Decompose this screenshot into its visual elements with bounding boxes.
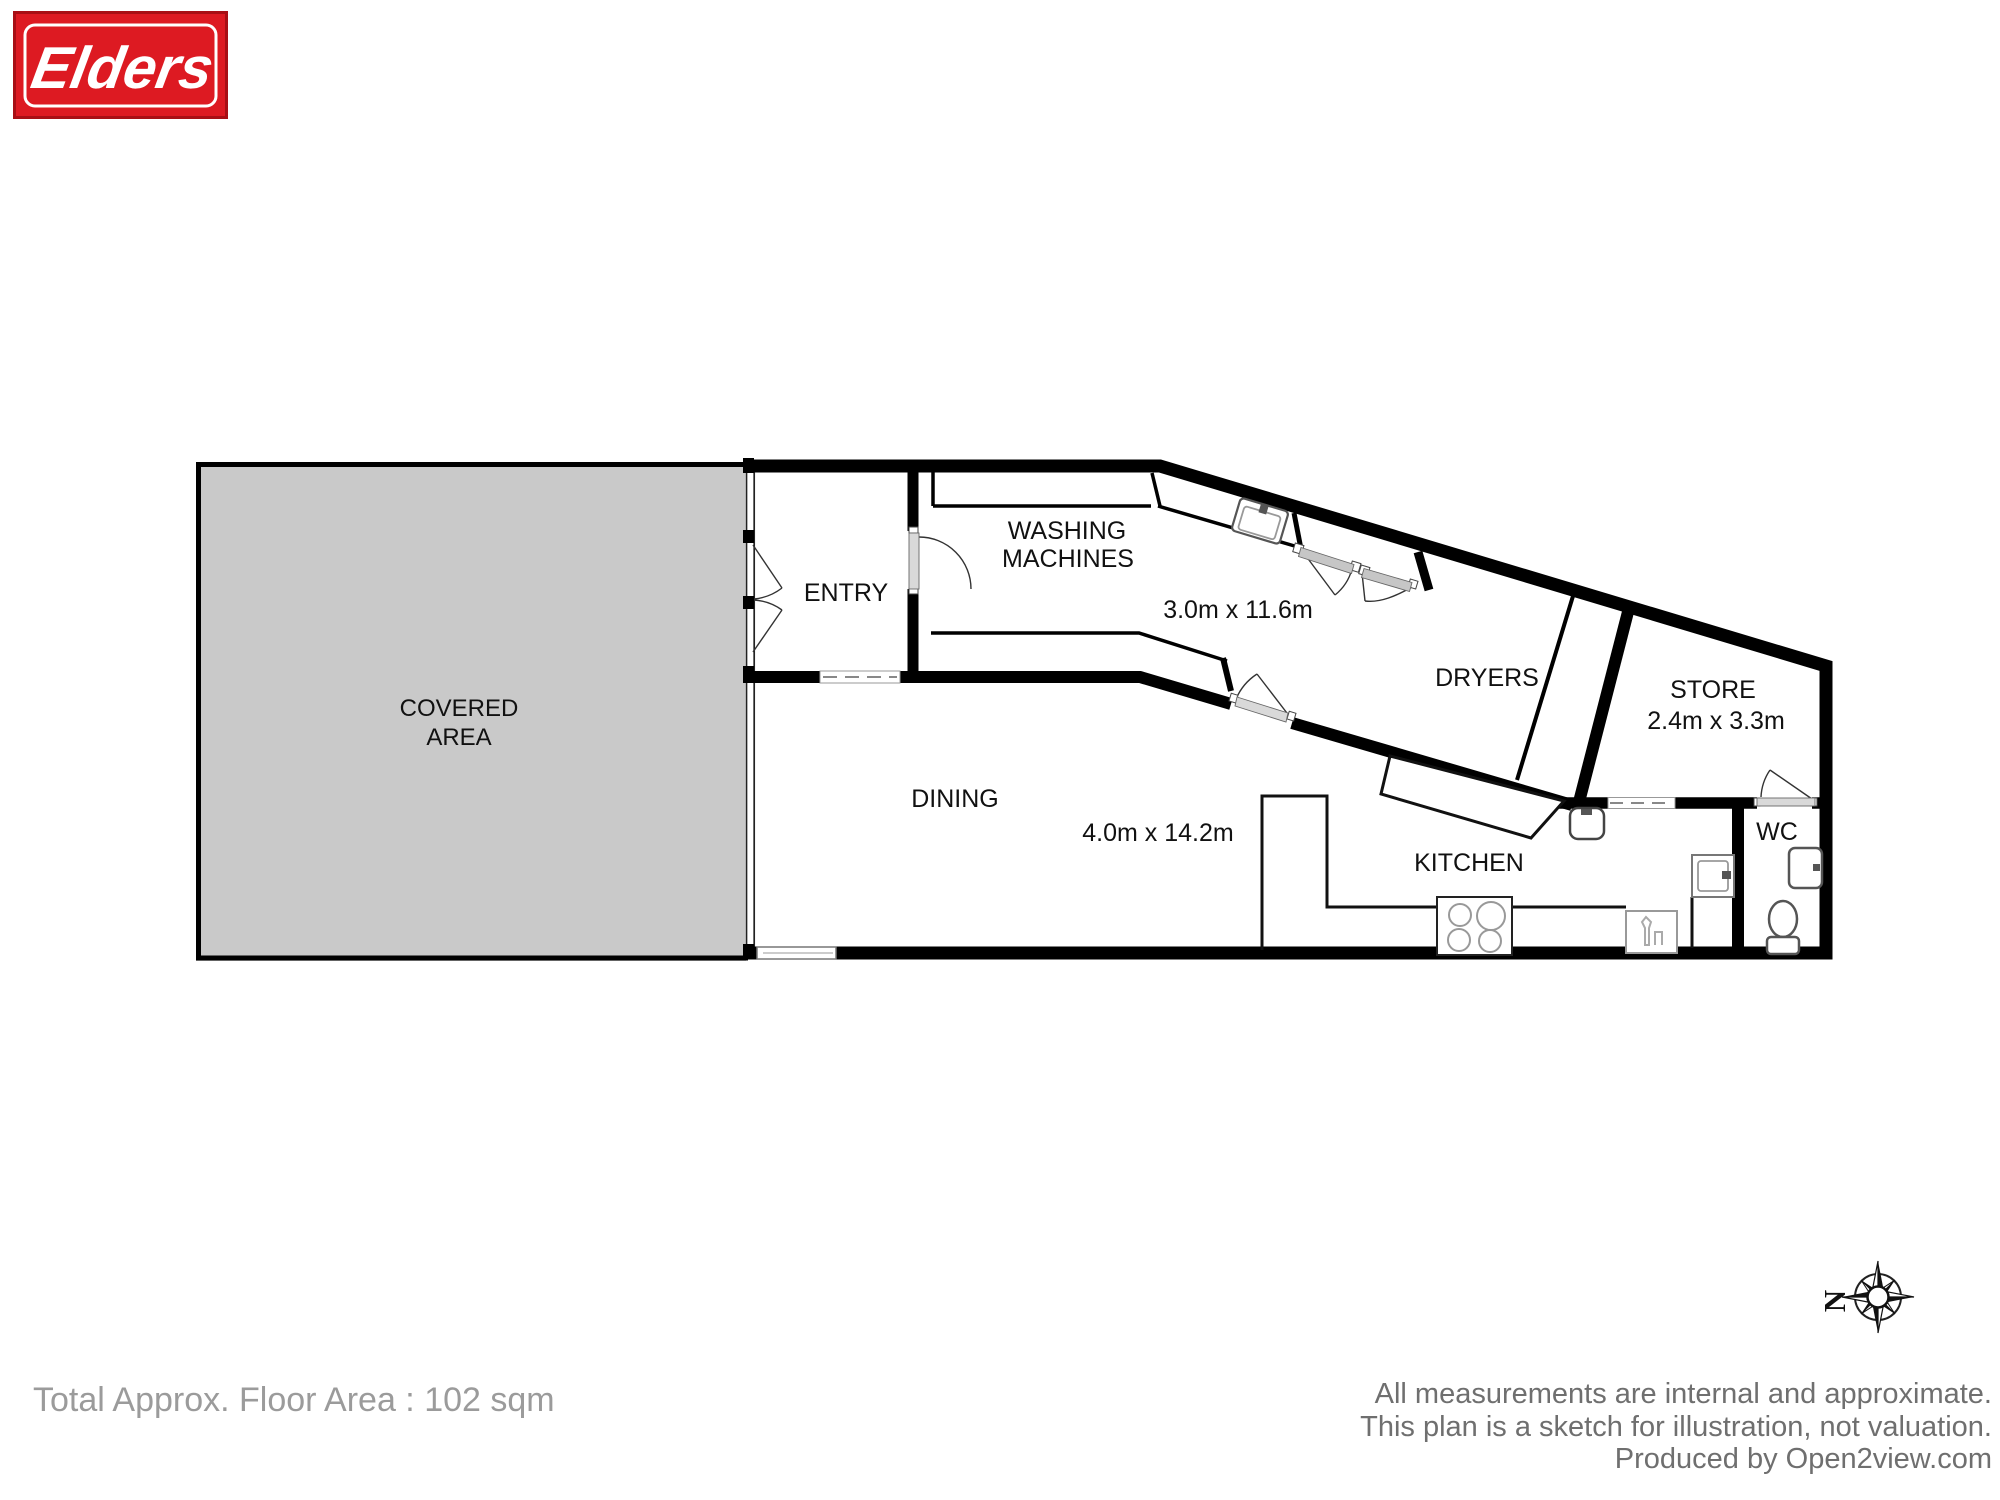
svg-text:N: N <box>1817 1290 1852 1312</box>
svg-text:WC: WC <box>1756 818 1798 846</box>
svg-text:AREA: AREA <box>426 724 491 751</box>
svg-text:MACHINES: MACHINES <box>1002 545 1134 573</box>
svg-text:All measurements are internal: All measurements are internal and approx… <box>1375 1378 1992 1410</box>
svg-text:ENTRY: ENTRY <box>804 579 889 607</box>
svg-text:DINING: DINING <box>911 785 999 813</box>
svg-text:2.4m x 3.3m: 2.4m x 3.3m <box>1647 707 1785 735</box>
svg-text:Elders: Elders <box>27 34 219 100</box>
svg-text:3.0m x 11.6m: 3.0m x 11.6m <box>1163 596 1313 624</box>
svg-text:WASHING: WASHING <box>1008 517 1127 545</box>
svg-text:Total Approx. Floor Area : 102: Total Approx. Floor Area : 102 sqm <box>33 1381 555 1419</box>
svg-text:COVERED: COVERED <box>400 695 519 722</box>
svg-text:DRYERS: DRYERS <box>1435 664 1539 692</box>
svg-text:STORE: STORE <box>1670 676 1756 704</box>
svg-text:4.0m x 14.2m: 4.0m x 14.2m <box>1082 819 1233 847</box>
svg-text:Produced by Open2view.com: Produced by Open2view.com <box>1615 1443 1992 1475</box>
svg-text:KITCHEN: KITCHEN <box>1414 849 1524 877</box>
svg-text:This plan is a sketch for illu: This plan is a sketch for illustration, … <box>1360 1411 1992 1443</box>
